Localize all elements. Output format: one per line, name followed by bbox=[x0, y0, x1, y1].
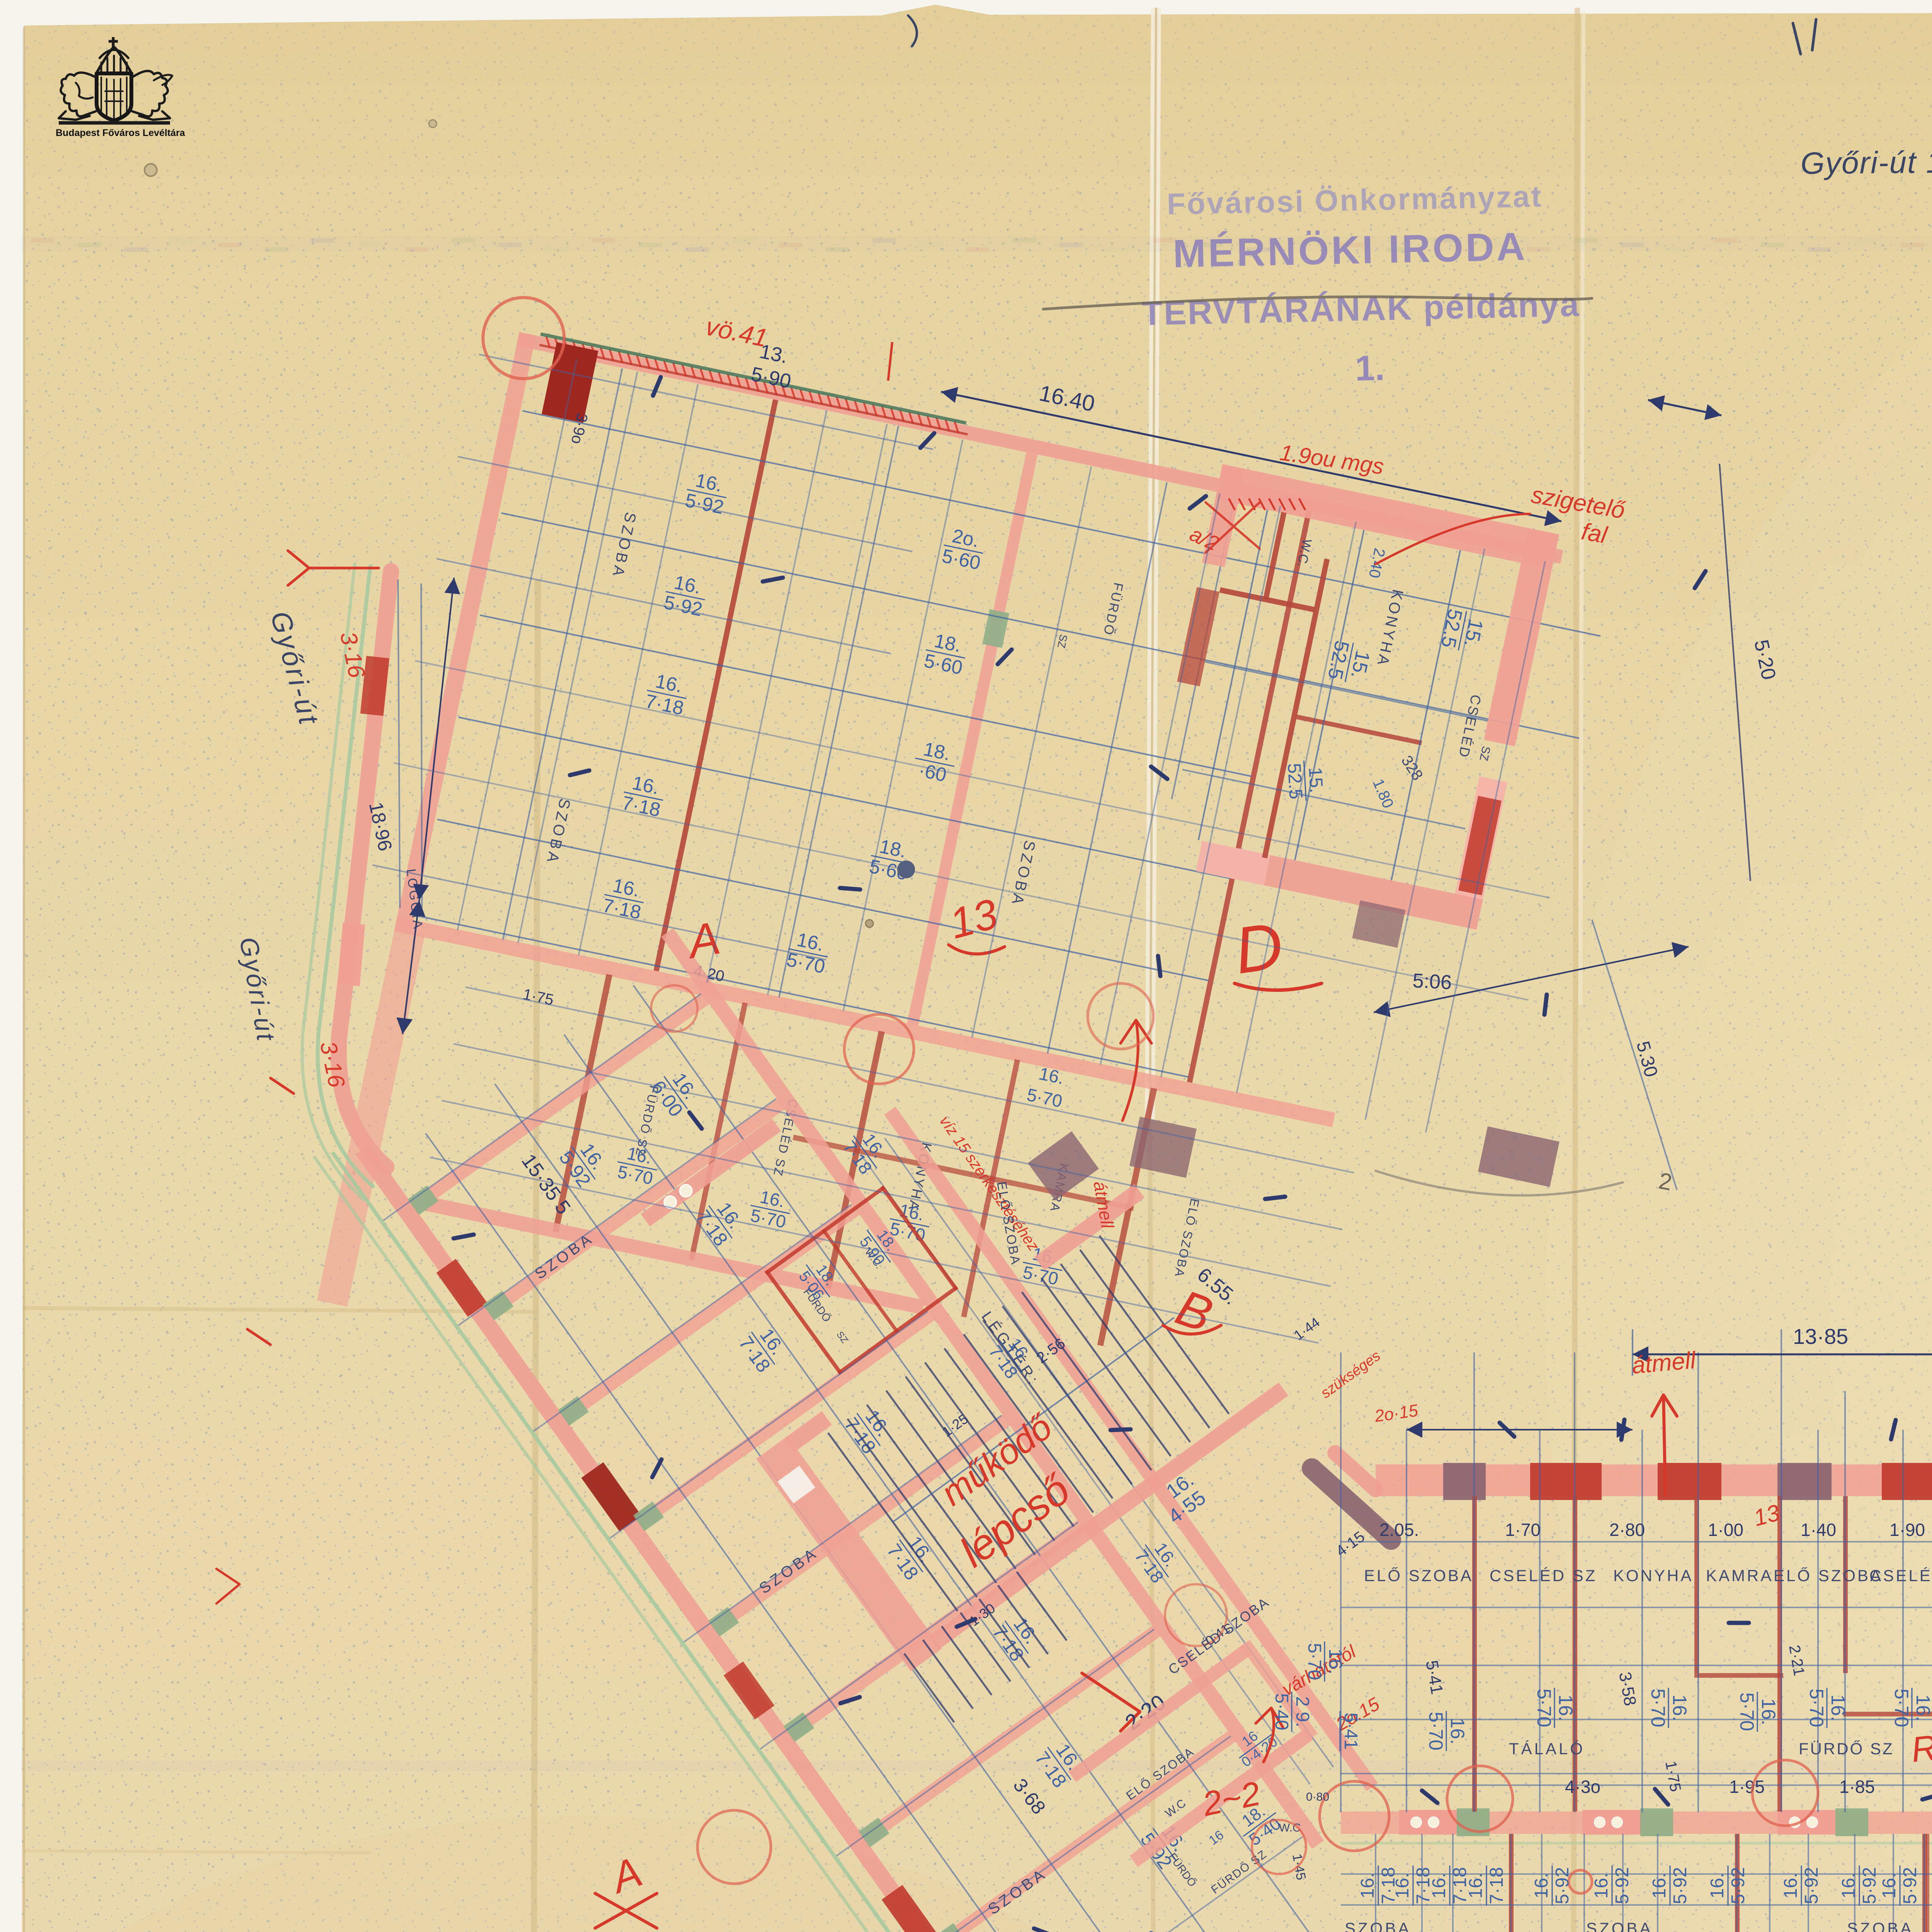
svg-text:16.: 16. bbox=[1531, 1873, 1552, 1899]
svg-text:TÁLALÓ: TÁLALÓ bbox=[1509, 1740, 1585, 1758]
svg-text:2.05.: 2.05. bbox=[1379, 1520, 1419, 1540]
svg-text:SZOBA: SZOBA bbox=[1586, 1919, 1653, 1932]
svg-text:5·70: 5·70 bbox=[1647, 1689, 1669, 1727]
svg-text:1·40: 1·40 bbox=[1801, 1520, 1836, 1540]
svg-text:5·92: 5·92 bbox=[1552, 1867, 1573, 1904]
svg-text:16.: 16. bbox=[1325, 1649, 1345, 1675]
svg-text:16.: 16. bbox=[1649, 1873, 1670, 1899]
svg-text:Győri-út 12 Ház szövetkezet: Győri-út 12 Ház szövetkezet építkezése bbox=[1800, 141, 1932, 180]
svg-text:5·92: 5·92 bbox=[1670, 1867, 1690, 1904]
svg-text:2 9.: 2 9. bbox=[1292, 1696, 1313, 1727]
svg-text:16.: 16. bbox=[1591, 1873, 1612, 1899]
svg-text:5:06: 5:06 bbox=[1412, 969, 1452, 994]
svg-text:16.: 16. bbox=[1838, 1873, 1859, 1899]
svg-text:SZOBA: SZOBA bbox=[1345, 1919, 1411, 1932]
svg-text:16.: 16. bbox=[1447, 1718, 1468, 1745]
svg-text:5·70: 5·70 bbox=[1304, 1643, 1325, 1680]
svg-text:KAMRA: KAMRA bbox=[1706, 1566, 1773, 1585]
svg-text:15.: 15. bbox=[1304, 767, 1327, 794]
svg-text:5·70: 5·70 bbox=[1736, 1692, 1758, 1731]
svg-text:CSELÉD SZ: CSELÉD SZ bbox=[1869, 1566, 1932, 1585]
svg-text:5·92: 5·92 bbox=[1900, 1867, 1920, 1904]
svg-text:16.: 16. bbox=[1827, 1694, 1849, 1721]
svg-text:5·41: 5·41 bbox=[1340, 1713, 1361, 1750]
svg-text:ELŐ SZOBA: ELŐ SZOBA bbox=[1774, 1566, 1883, 1585]
svg-text:SZOBA: SZOBA bbox=[1847, 1919, 1913, 1932]
svg-text:16.: 16. bbox=[1707, 1873, 1728, 1899]
svg-text:16.: 16. bbox=[1392, 1873, 1413, 1899]
svg-text:13·85: 13·85 bbox=[1793, 1324, 1848, 1349]
svg-text:4·3o: 4·3o bbox=[1565, 1777, 1600, 1797]
svg-text:FÜRDŐ SZ: FÜRDŐ SZ bbox=[1799, 1740, 1894, 1758]
svg-text:5·92: 5·92 bbox=[1612, 1867, 1633, 1904]
svg-text:2·80: 2·80 bbox=[1609, 1520, 1645, 1540]
svg-text:1.: 1. bbox=[1355, 348, 1385, 388]
svg-text:1·00: 1·00 bbox=[1708, 1520, 1743, 1540]
svg-text:5·70: 5·70 bbox=[1806, 1689, 1827, 1727]
svg-text:16.: 16. bbox=[1466, 1873, 1486, 1899]
svg-text:7·18: 7·18 bbox=[1486, 1867, 1507, 1904]
svg-text:0·80: 0·80 bbox=[1306, 1791, 1329, 1803]
svg-text:5·92: 5·92 bbox=[1801, 1867, 1822, 1904]
svg-text:KONYHA: KONYHA bbox=[1613, 1566, 1693, 1585]
svg-text:5·40: 5·40 bbox=[1271, 1693, 1292, 1730]
svg-text:ELŐ SZOBA: ELŐ SZOBA bbox=[1364, 1566, 1473, 1585]
svg-text:átmell: átmell bbox=[1631, 1347, 1697, 1379]
svg-text:1·90: 1·90 bbox=[1889, 1520, 1925, 1540]
svg-text:16.: 16. bbox=[1758, 1698, 1779, 1725]
svg-text:Budapest Főváros Levéltára: Budapest Főváros Levéltára bbox=[56, 128, 185, 138]
svg-text:16.: 16. bbox=[1555, 1694, 1577, 1721]
svg-text:1·85: 1·85 bbox=[1839, 1777, 1875, 1797]
svg-text:16.: 16. bbox=[1429, 1873, 1449, 1899]
svg-text:5·92: 5·92 bbox=[1859, 1867, 1880, 1904]
svg-text:16.: 16. bbox=[1879, 1873, 1900, 1899]
svg-text:16.: 16. bbox=[1357, 1873, 1378, 1899]
svg-text:5·70: 5·70 bbox=[1425, 1712, 1447, 1750]
svg-text:5·92: 5·92 bbox=[1728, 1867, 1748, 1904]
svg-text:16.: 16. bbox=[1781, 1873, 1801, 1899]
svg-text:CSELÉD SZ: CSELÉD SZ bbox=[1490, 1566, 1597, 1585]
svg-text:1·95: 1·95 bbox=[1729, 1777, 1765, 1797]
svg-text:1·70: 1·70 bbox=[1505, 1520, 1541, 1540]
svg-text:5·70: 5·70 bbox=[1533, 1689, 1555, 1727]
svg-text:16.: 16. bbox=[1669, 1694, 1690, 1721]
svg-text:MÉRNÖKI IRODA: MÉRNÖKI IRODA bbox=[1172, 224, 1527, 276]
svg-text:5·70: 5·70 bbox=[1891, 1689, 1912, 1727]
svg-text:16.: 16. bbox=[1912, 1694, 1932, 1721]
